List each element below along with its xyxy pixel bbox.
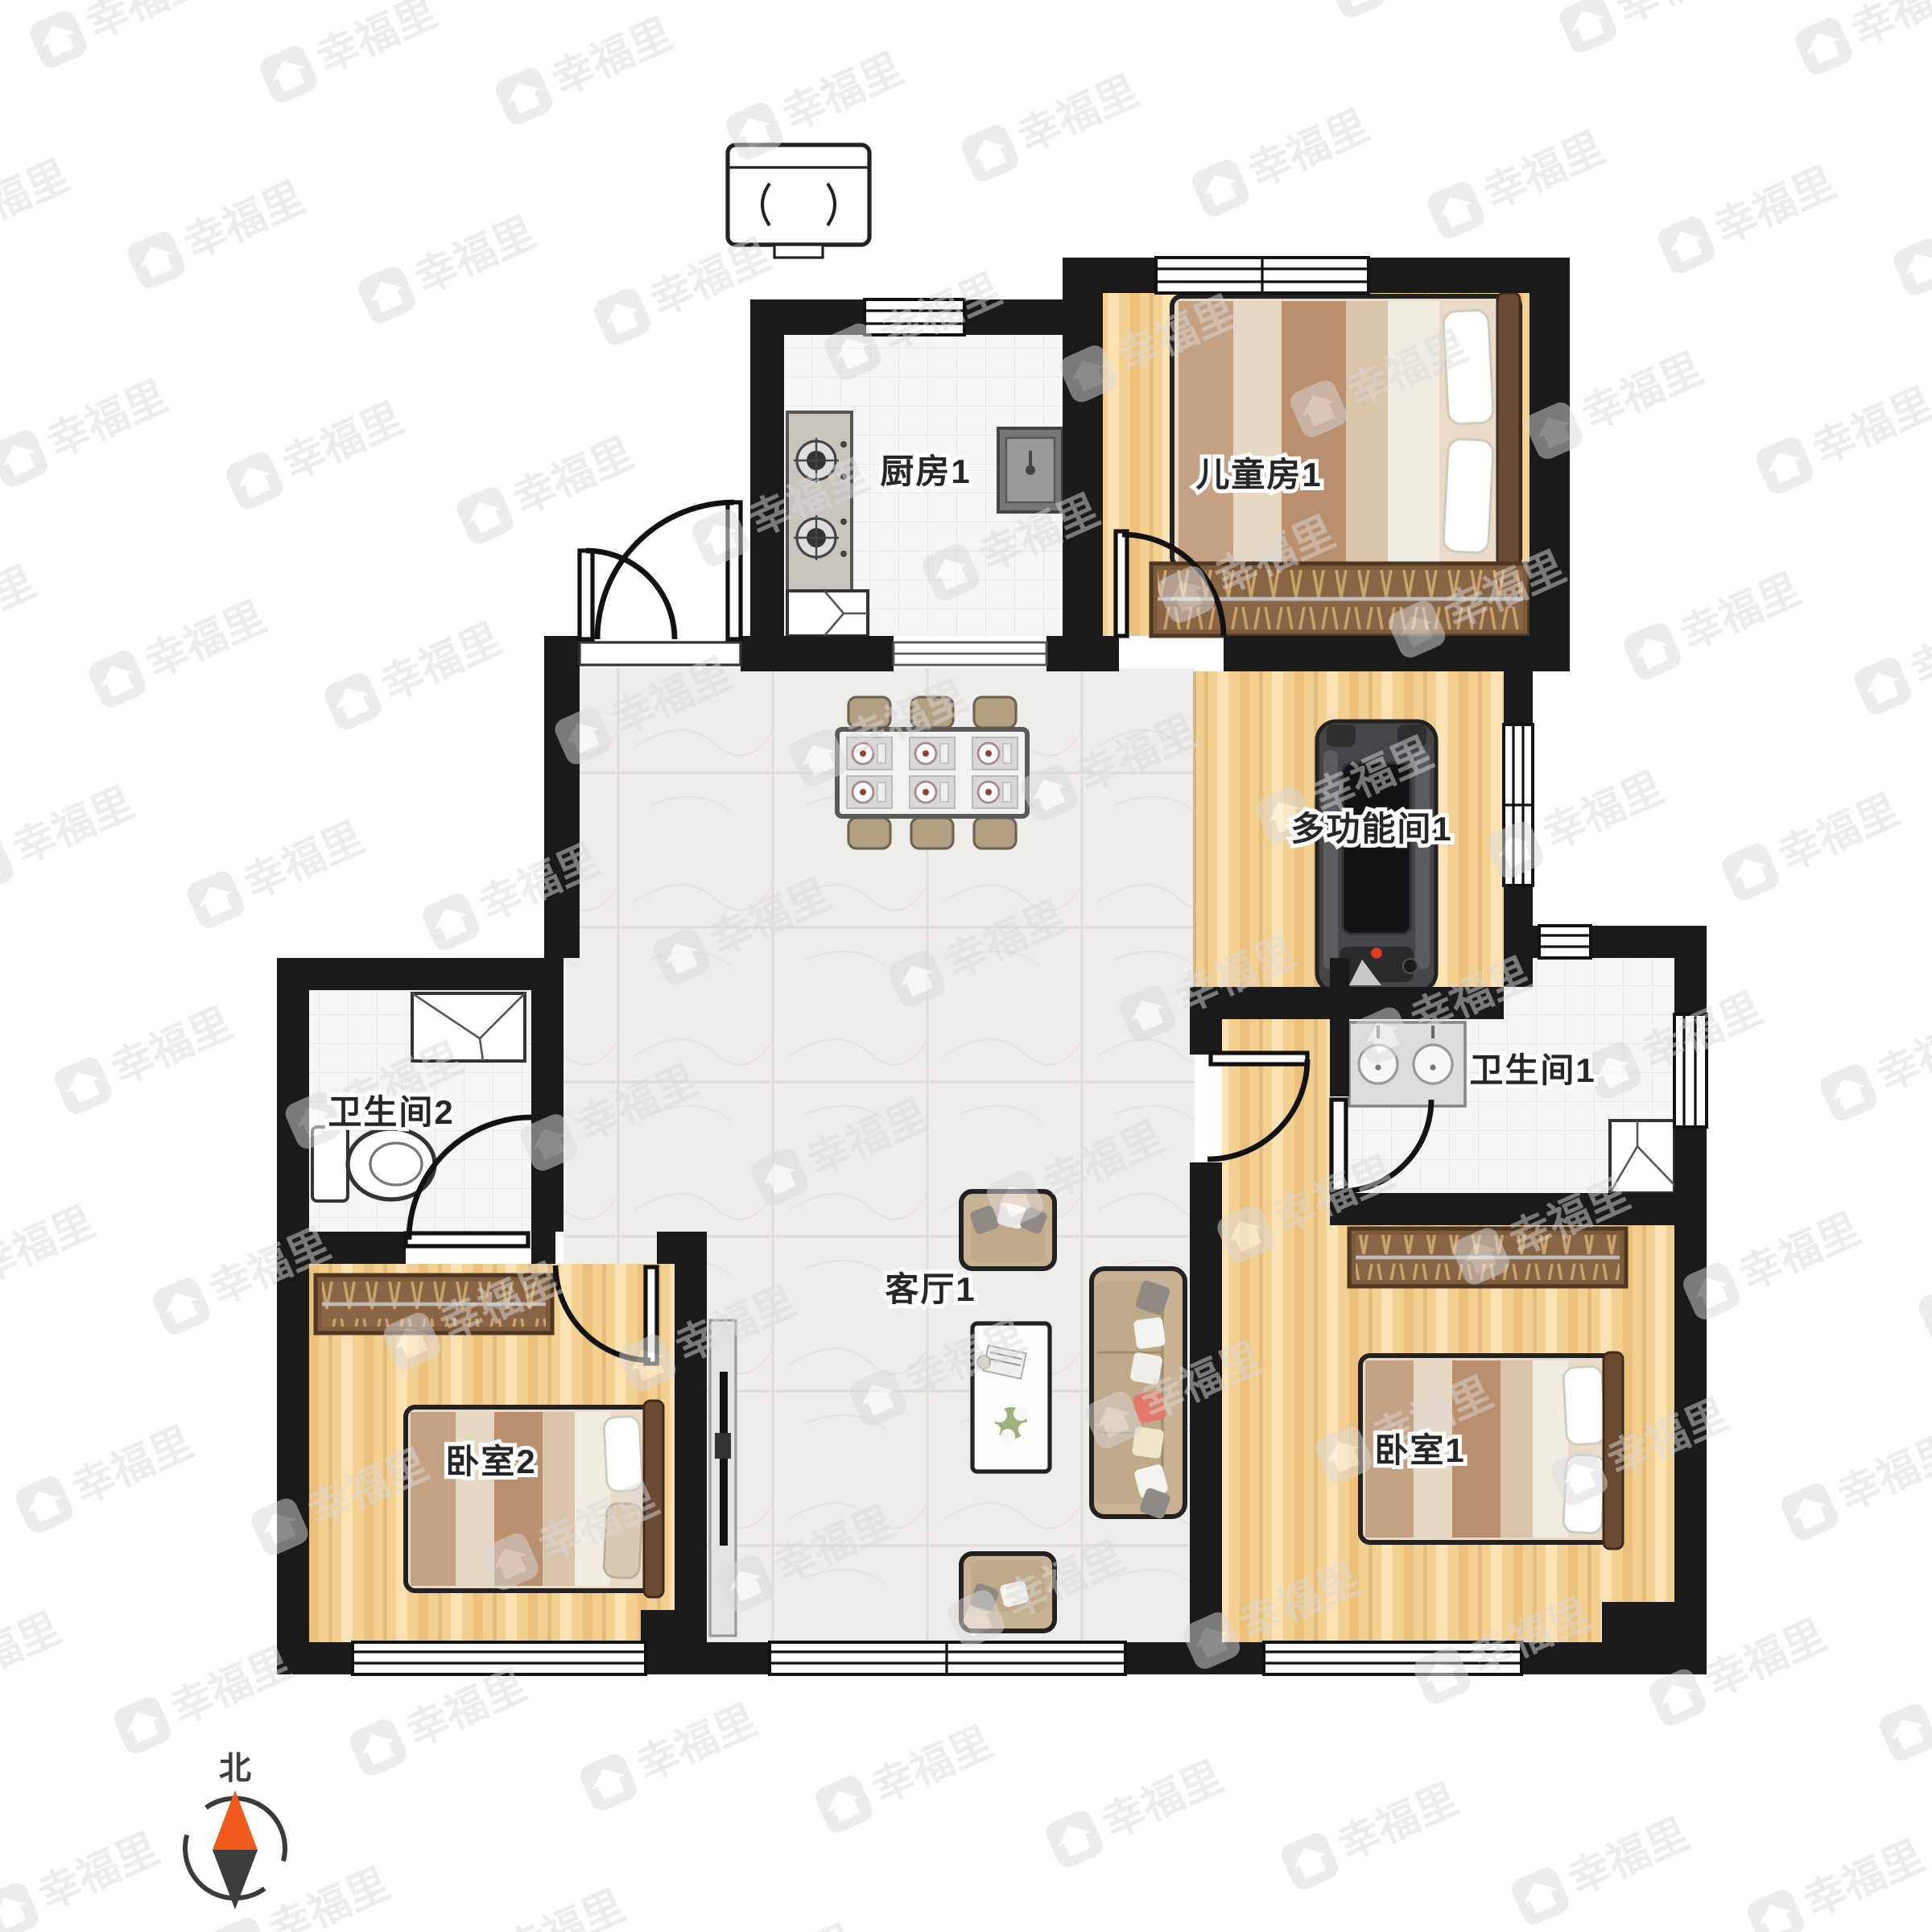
floor-plan: 幸福里 幸福里 <box>0 0 1932 1932</box>
label-bedroom1: 卧室1 <box>1374 1431 1465 1469</box>
label-multi-room: 多功能间1 <box>1290 810 1452 848</box>
label-bathroom2: 卫生间2 <box>328 1093 454 1131</box>
label-bathroom1: 卫生间1 <box>1469 1051 1596 1089</box>
label-kids-room: 儿童房1 <box>1195 456 1322 493</box>
label-bedroom2: 卧室2 <box>445 1443 536 1480</box>
label-kitchen: 厨房1 <box>880 452 971 490</box>
watermark-overlay <box>0 0 1932 1932</box>
label-living-room: 客厅1 <box>885 1270 976 1308</box>
compass-north-label: 北 <box>219 1751 251 1786</box>
